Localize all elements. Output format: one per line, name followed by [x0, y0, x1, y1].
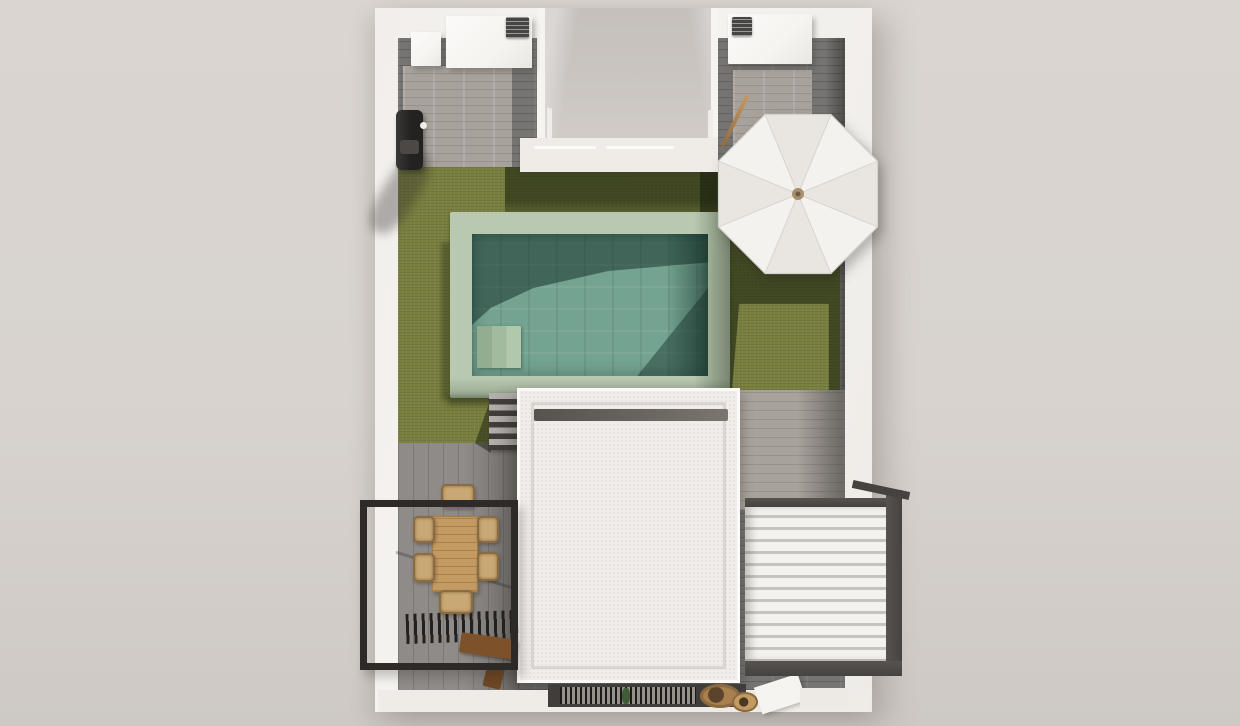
- rattan-seat: [732, 692, 758, 712]
- entrance-wall-step: [800, 688, 848, 708]
- render-canvas: [0, 0, 1240, 726]
- small-plant: [622, 688, 630, 704]
- pool-water: [472, 234, 708, 376]
- louvered-pergola: [745, 506, 888, 662]
- villa-compound: [375, 8, 872, 712]
- garden-shower: [396, 110, 423, 170]
- swimming-pool: [450, 212, 730, 398]
- pergola-frame-right: [886, 490, 902, 676]
- courtyard-wall-highlight: [545, 8, 718, 140]
- main-roof: [517, 388, 740, 683]
- ac-unit-left: [506, 17, 529, 38]
- ac-unit-right: [732, 17, 752, 36]
- parasol: [711, 107, 885, 281]
- pergola-frame-diagonal: [852, 480, 910, 500]
- parasol-pole-tip: [796, 192, 801, 197]
- shower-head: [400, 140, 419, 154]
- garden-stairs: [489, 393, 519, 450]
- pool-steps: [477, 326, 521, 368]
- roof-skylight-strip: [534, 409, 728, 421]
- window-sill: [606, 146, 674, 149]
- pergola-frame-top: [745, 498, 890, 507]
- entry-courtyard: [545, 8, 718, 140]
- pergola-frame-bottom: [745, 661, 902, 676]
- balcony-frame: [360, 500, 518, 670]
- roof-block-left-small: [411, 32, 441, 66]
- shower-valve: [420, 122, 427, 129]
- courtyard-south-wall: [520, 138, 718, 172]
- window-sill: [534, 146, 596, 149]
- stone-patio-southeast: [727, 390, 845, 510]
- roof-parapet-inset: [531, 402, 726, 669]
